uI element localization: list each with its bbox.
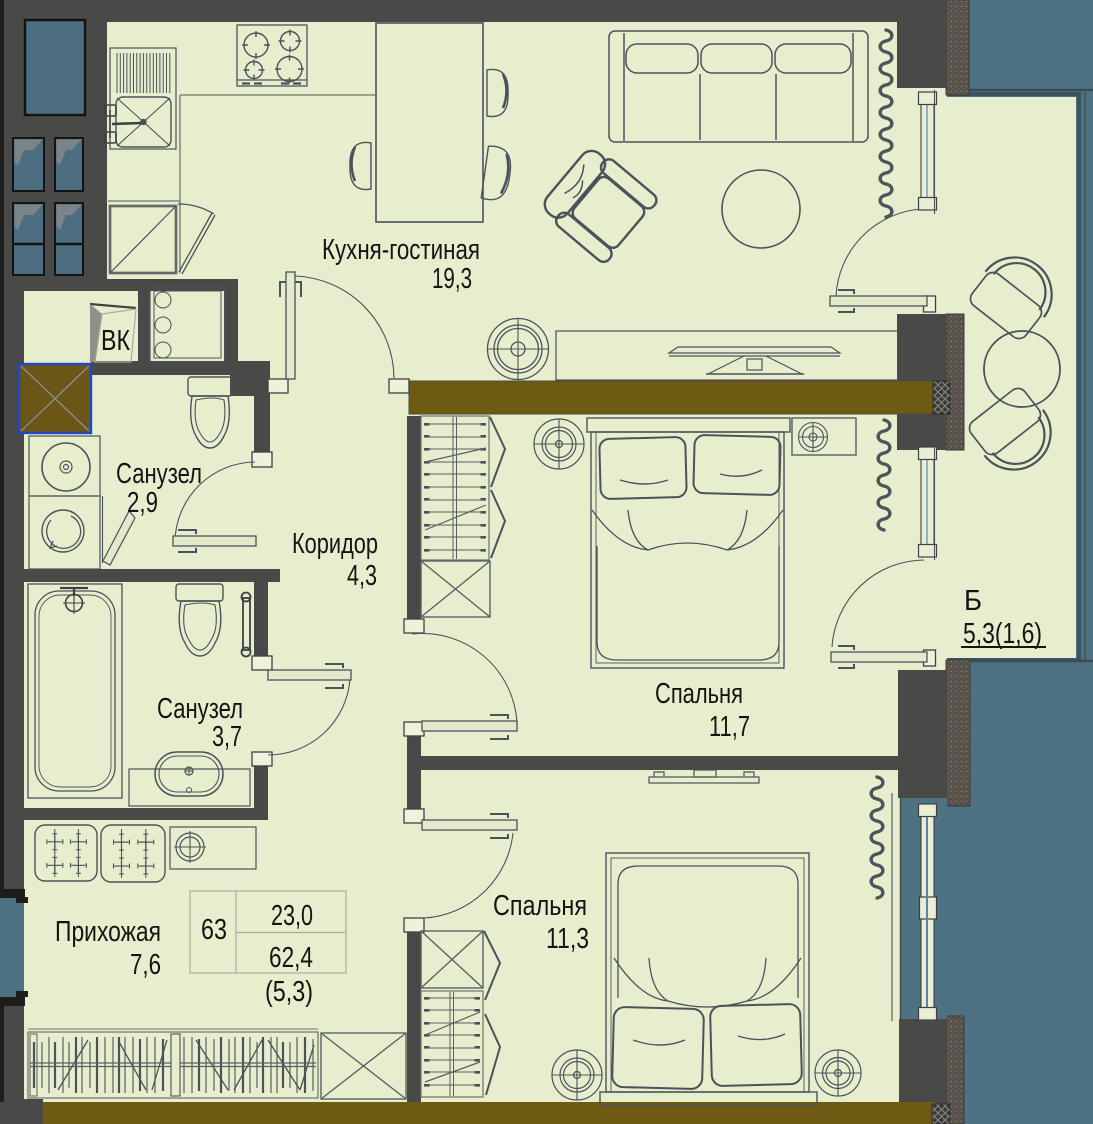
svg-text:11,3: 11,3 bbox=[546, 923, 589, 955]
svg-text:3,7: 3,7 bbox=[212, 721, 242, 753]
svg-text:Спальня: Спальня bbox=[655, 678, 743, 710]
svg-text:11,7: 11,7 bbox=[709, 711, 750, 743]
svg-text:23,0: 23,0 bbox=[271, 900, 313, 932]
svg-text:Коридор: Коридор bbox=[292, 528, 378, 560]
svg-text:Санузел: Санузел bbox=[116, 458, 202, 490]
svg-text:Кухня-гостиная: Кухня-гостиная bbox=[322, 234, 480, 266]
svg-text:(5,3): (5,3) bbox=[265, 976, 313, 1008]
svg-text:Прихожая: Прихожая bbox=[55, 916, 161, 948]
svg-text:63: 63 bbox=[201, 914, 227, 946]
svg-text:Спальня: Спальня bbox=[493, 890, 587, 922]
svg-text:Б: Б bbox=[964, 585, 982, 617]
svg-text:19,3: 19,3 bbox=[432, 263, 472, 295]
svg-text:62,4: 62,4 bbox=[269, 942, 313, 974]
svg-text:4,3: 4,3 bbox=[347, 560, 377, 592]
svg-text:7,6: 7,6 bbox=[130, 949, 161, 981]
svg-text:ВК: ВК bbox=[101, 325, 130, 357]
svg-text:5,3(1,6): 5,3(1,6) bbox=[963, 618, 1042, 650]
svg-text:2,9: 2,9 bbox=[127, 487, 158, 519]
